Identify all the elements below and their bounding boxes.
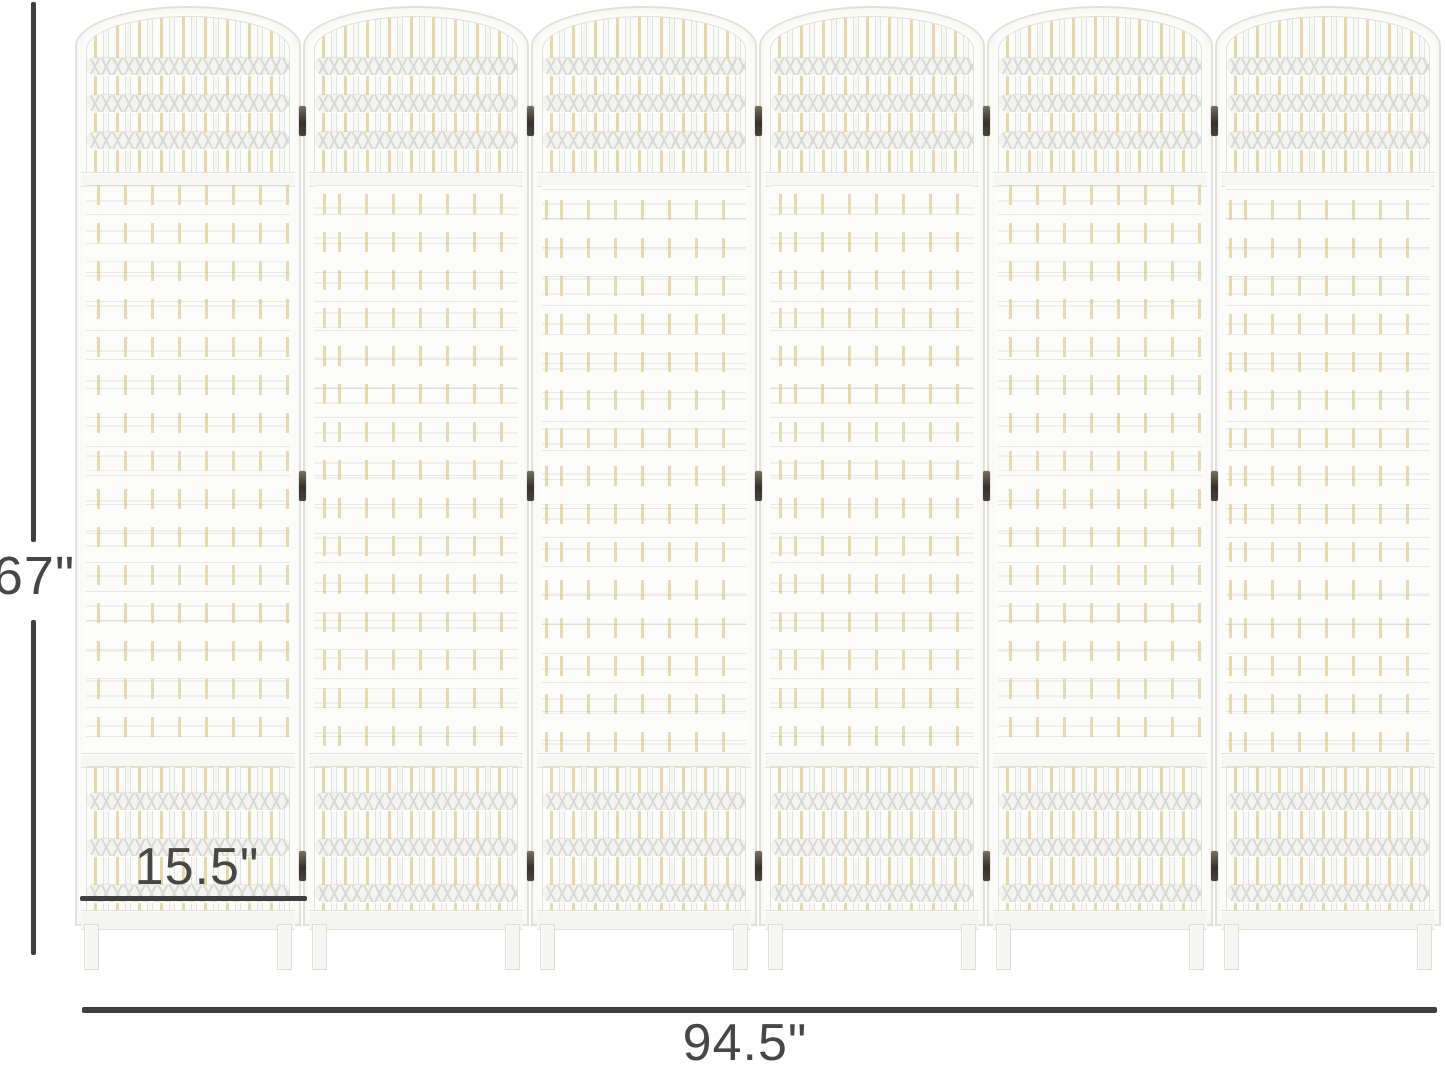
lattice-weave-row [315, 793, 517, 810]
lattice-weave-row [999, 58, 1201, 75]
lattice-weave-row [999, 885, 1201, 902]
height-label: 67" [0, 548, 75, 605]
panel-leg [733, 924, 748, 970]
lattice-weave-row [87, 132, 289, 149]
lattice-weave-row [87, 793, 289, 810]
panel-leg [996, 924, 1011, 970]
lattice-weave-row [1227, 885, 1429, 902]
lattice-weave-row [543, 885, 745, 902]
lattice-weave-row [771, 793, 973, 810]
lattice-weave-row [543, 58, 745, 75]
panel-hinge [527, 106, 534, 136]
lattice-weave-row [1227, 839, 1429, 856]
lattice-weave-row [87, 58, 289, 75]
panel-bottom-rail [537, 910, 751, 930]
lattice-weave-row [315, 58, 517, 75]
panel-hinge [527, 851, 534, 881]
divider-panel [987, 6, 1213, 926]
lattice-weave-row [999, 132, 1201, 149]
lattice-weave-row [87, 95, 289, 112]
panel-top-lattice [1226, 16, 1430, 174]
panel-bottom-lattice [770, 766, 974, 912]
panel-woven-body [542, 185, 746, 753]
lattice-weave-row [771, 885, 973, 902]
panel-leg [1417, 924, 1432, 970]
panel-hinge [983, 106, 990, 136]
panel-leg [540, 924, 555, 970]
panel-width-dimension-line [80, 896, 307, 901]
panel-woven-body [998, 185, 1202, 753]
room-divider [75, 6, 1441, 926]
panel-hinge [299, 851, 306, 881]
panel-leg [84, 924, 99, 970]
divider-panel [1215, 6, 1441, 926]
panel-hinge [299, 471, 306, 501]
panel-leg [768, 924, 783, 970]
total-width-dimension-line [82, 1007, 1437, 1013]
panel-bottom-lattice [1226, 766, 1430, 912]
panel-hinge [755, 106, 762, 136]
panel-hinge [1211, 471, 1218, 501]
panel-leg [312, 924, 327, 970]
panel-top-lattice [314, 16, 518, 174]
lattice-weave-row [999, 839, 1201, 856]
panel-leg [1189, 924, 1204, 970]
lattice-weave-row [1227, 793, 1429, 810]
divider-panel [303, 6, 529, 926]
panel-hinge [983, 851, 990, 881]
panel-leg [961, 924, 976, 970]
panel-hinge [299, 106, 306, 136]
panel-bottom-lattice [998, 766, 1202, 912]
lattice-weave-row [315, 885, 517, 902]
lattice-weave-row [543, 839, 745, 856]
panel-bottom-rail [309, 910, 523, 930]
lattice-weave-row [771, 132, 973, 149]
panel-bottom-rail [81, 910, 295, 930]
panel-woven-body [1226, 185, 1430, 753]
lattice-weave-row [999, 95, 1201, 112]
lattice-weave-row [1227, 58, 1429, 75]
panel-leg [1224, 924, 1239, 970]
panel-bottom-rail [993, 910, 1207, 930]
lattice-weave-row [771, 839, 973, 856]
panel-hinge [755, 471, 762, 501]
height-dimension-line-lower [31, 620, 36, 955]
lattice-weave-row [315, 95, 517, 112]
panel-woven-body [314, 185, 518, 753]
lattice-weave-row [543, 95, 745, 112]
total-width-label: 94.5" [683, 1016, 808, 1071]
lattice-weave-row [771, 95, 973, 112]
panel-hinge [1211, 106, 1218, 136]
lattice-weave-row [771, 58, 973, 75]
divider-panel [531, 6, 757, 926]
height-dimension-line-upper [31, 2, 36, 542]
panel-bottom-lattice [314, 766, 518, 912]
panel-bottom-rail [1221, 910, 1435, 930]
panel-woven-body [770, 185, 974, 753]
panel-woven-body [86, 185, 290, 753]
panel-leg [505, 924, 520, 970]
panel-top-lattice [86, 16, 290, 174]
panel-bottom-lattice [542, 766, 746, 912]
panel-leg [277, 924, 292, 970]
panel-hinge [527, 471, 534, 501]
lattice-weave-row [543, 132, 745, 149]
lattice-weave-row [315, 839, 517, 856]
lattice-weave-row [315, 132, 517, 149]
panel-hinge [755, 851, 762, 881]
divider-panel [759, 6, 985, 926]
panel-top-lattice [998, 16, 1202, 174]
lattice-weave-row [999, 793, 1201, 810]
panel-top-lattice [542, 16, 746, 174]
lattice-weave-row [1227, 95, 1429, 112]
divider-panel [75, 6, 301, 926]
lattice-weave-row [543, 793, 745, 810]
product-dimension-image: 67" 15.5" 94.5" [0, 0, 1445, 1072]
panel-top-lattice [770, 16, 974, 174]
lattice-weave-row [1227, 132, 1429, 149]
panel-hinge [1211, 851, 1218, 881]
panel-hinge [983, 471, 990, 501]
panel-bottom-rail [765, 910, 979, 930]
panel-width-label: 15.5" [135, 840, 260, 895]
